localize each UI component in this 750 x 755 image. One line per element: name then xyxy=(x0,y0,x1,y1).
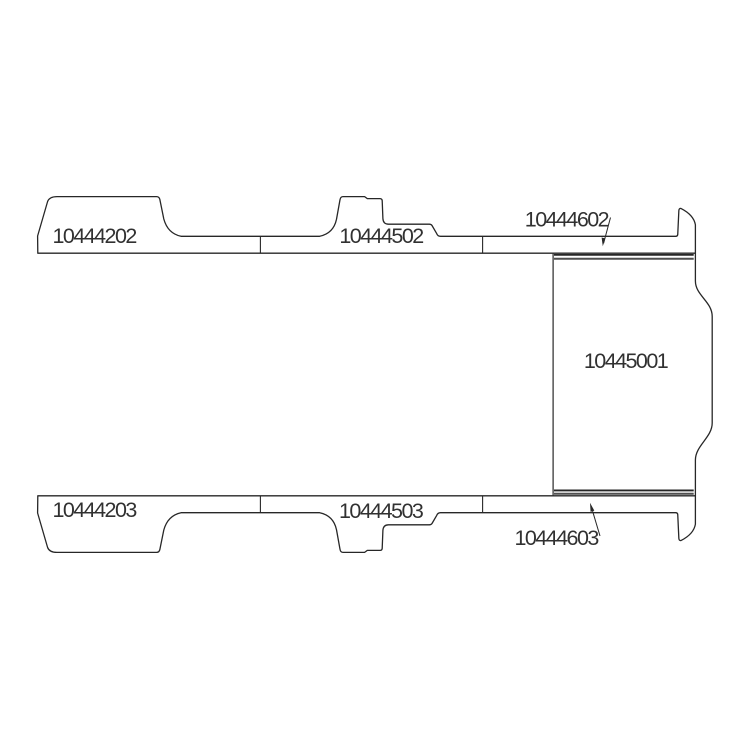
svg-text:10444202: 10444202 xyxy=(53,224,137,248)
svg-text:10445001: 10445001 xyxy=(584,349,668,373)
svg-text:10444203: 10444203 xyxy=(53,498,138,522)
svg-text:10444603: 10444603 xyxy=(515,526,600,550)
svg-text:10444503: 10444503 xyxy=(339,499,424,523)
svg-text:10444502: 10444502 xyxy=(339,224,423,248)
svg-text:10444602: 10444602 xyxy=(525,207,609,231)
